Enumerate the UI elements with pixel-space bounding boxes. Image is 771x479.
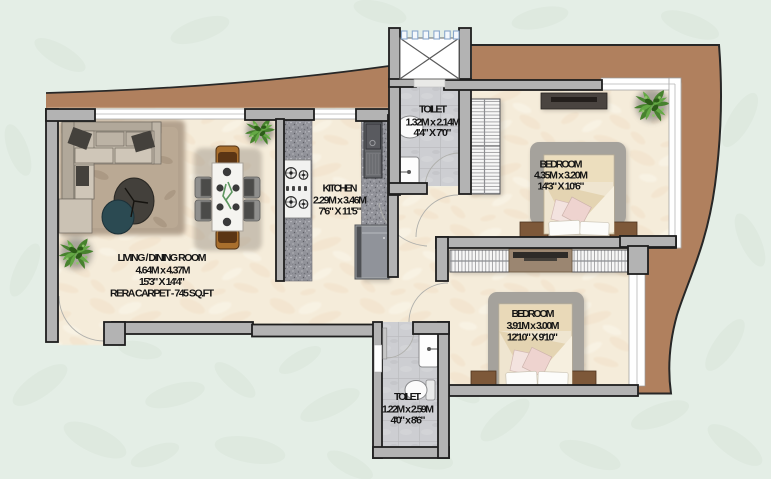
svg-text:KITCHEN: KITCHEN bbox=[323, 183, 358, 195]
svg-text:4'0" x 8'6": 4'0" x 8'6" bbox=[391, 415, 426, 427]
svg-text:14'3" X 10'6": 14'3" X 10'6" bbox=[538, 181, 585, 193]
svg-text:TOILET: TOILET bbox=[419, 104, 448, 116]
svg-text:BEDROOM: BEDROOM bbox=[512, 308, 555, 320]
svg-text:12'10" X 9'10": 12'10" X 9'10" bbox=[507, 332, 558, 344]
svg-text:TOILET: TOILET bbox=[394, 391, 422, 403]
svg-text:15'3" X 14'4": 15'3" X 14'4" bbox=[139, 276, 185, 288]
svg-text:4.64M x 4.37M: 4.64M x 4.37M bbox=[136, 265, 191, 277]
svg-text:4'4" X 7'0": 4'4" X 7'0" bbox=[414, 127, 452, 139]
svg-text:7'6" X 11'5": 7'6" X 11'5" bbox=[319, 206, 362, 218]
svg-text:RERA CARPET - 745 SQ.FT: RERA CARPET - 745 SQ.FT bbox=[110, 288, 215, 300]
svg-text:3.91M x 3.00M: 3.91M x 3.00M bbox=[507, 320, 560, 332]
svg-text:LIVING / DINING ROOM: LIVING / DINING ROOM bbox=[118, 252, 207, 264]
